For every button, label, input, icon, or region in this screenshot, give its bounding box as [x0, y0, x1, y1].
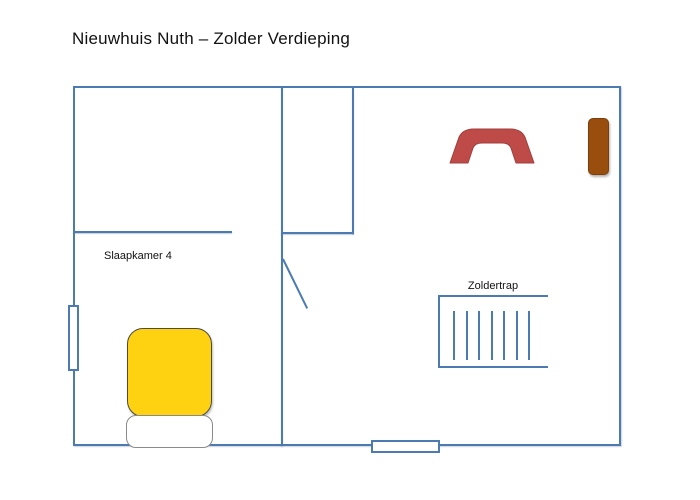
- page-title: Nieuwhuis Nuth – Zolder Verdieping: [72, 29, 350, 49]
- bedroom-wall: [73, 231, 232, 233]
- stair-tread: [466, 311, 468, 360]
- stairs-label: Zoldertrap: [438, 280, 548, 292]
- stair-tread: [453, 311, 455, 360]
- closet-bottom-wall: [281, 232, 354, 234]
- stair-tread: [478, 311, 480, 360]
- closet-right-wall: [352, 86, 354, 234]
- stair-tread: [516, 311, 518, 360]
- stair-tread: [491, 311, 493, 360]
- stair-tread: [528, 311, 530, 360]
- floorplan-page: { "title": "Nieuwhuis Nuth – Zolder Verd…: [0, 0, 700, 500]
- bedroom-label: Slaapkamer 4: [104, 250, 172, 262]
- dividing-wall: [281, 86, 283, 446]
- stair-tread: [503, 311, 505, 360]
- window-left-wall: [68, 305, 79, 371]
- wood-door-block: [588, 118, 609, 175]
- window-bottom-wall: [371, 440, 440, 453]
- arch-shape: [448, 126, 536, 166]
- bed-pillow: [126, 415, 213, 448]
- bed-mattress: [127, 328, 212, 417]
- stairs-treads: [438, 295, 548, 368]
